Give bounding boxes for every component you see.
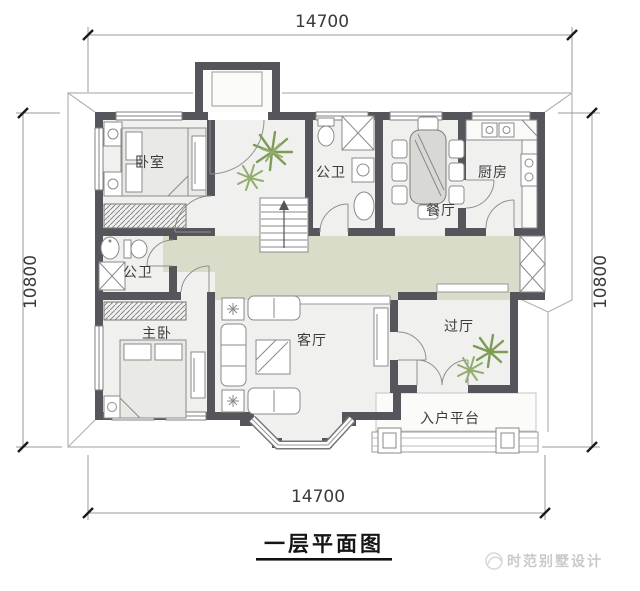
wardrobe-symbol xyxy=(104,302,186,320)
bed-symbol xyxy=(120,340,186,418)
chair-icon xyxy=(392,163,407,181)
label-master-bedroom: 主卧 xyxy=(142,326,172,342)
dimension-top: 14700 xyxy=(83,12,577,92)
entry-steps xyxy=(372,428,538,453)
chair-icon xyxy=(449,140,464,158)
dim-right-value: 10800 xyxy=(591,255,611,309)
corridor-sill-strip xyxy=(288,296,390,304)
hallway-sill-strip xyxy=(437,284,508,292)
dresser-symbol xyxy=(191,352,205,398)
shower-icon xyxy=(99,262,125,290)
toilet-icon xyxy=(318,118,334,146)
column-icon xyxy=(496,428,519,453)
chair-icon xyxy=(418,117,438,131)
toilet-icon xyxy=(124,240,147,258)
side-table-icon xyxy=(222,390,244,412)
chair-icon xyxy=(392,186,407,204)
label-hallway: 过厅 xyxy=(444,319,474,335)
porch-door-opening xyxy=(208,112,268,120)
stove-icon xyxy=(521,154,537,186)
window-bedroom-left xyxy=(95,128,103,190)
side-table-icon xyxy=(222,298,244,320)
label-bath-top: 公卫 xyxy=(316,165,346,181)
chair-icon xyxy=(449,186,464,204)
dim-bottom-value: 14700 xyxy=(291,487,345,507)
watermark: 时范别墅设计 xyxy=(486,553,603,570)
shower-icon xyxy=(342,116,374,150)
dimension-bottom: 14700 xyxy=(83,455,550,520)
wardrobe-symbol xyxy=(104,204,186,228)
nightstand-icon xyxy=(104,122,122,146)
drawing-title: 一层平面图 xyxy=(264,532,384,556)
stairs-icon xyxy=(260,198,308,252)
dresser-symbol xyxy=(192,136,206,190)
label-dining: 餐厅 xyxy=(426,203,456,219)
window-master-left xyxy=(95,326,103,390)
title-underline xyxy=(256,558,392,561)
label-bedroom: 卧室 xyxy=(135,154,165,171)
label-kitchen: 厨房 xyxy=(478,165,508,181)
tub-icon xyxy=(354,192,374,220)
corridor-end-pier xyxy=(520,236,545,292)
sofa-icon xyxy=(221,324,246,386)
watermark-logo-icon xyxy=(486,553,502,569)
basin-icon xyxy=(101,237,119,259)
dimension-left: 10800 xyxy=(16,108,62,452)
dim-top-value: 14700 xyxy=(295,12,349,32)
dimension-right: 10800 xyxy=(542,108,611,452)
label-bath-left: 公卫 xyxy=(123,265,153,281)
sofa-icon xyxy=(248,388,300,414)
watermark-text: 时范别墅设计 xyxy=(507,553,603,570)
label-living-room: 客厅 xyxy=(297,332,327,349)
chair-icon xyxy=(392,140,407,158)
sofa-icon xyxy=(248,296,300,320)
dim-left-value: 10800 xyxy=(21,255,41,309)
floor-plan-drawing: 卧室 公卫 餐厅 厨房 公卫 主卧 客厅 过厅 入户平台 14700 14700… xyxy=(0,0,640,591)
coffee-table-icon xyxy=(256,340,290,374)
window-kitchen xyxy=(472,112,530,120)
nightstand-icon xyxy=(104,396,120,418)
chair-icon xyxy=(449,163,464,181)
window-bedroom-top xyxy=(116,112,182,120)
sink-icon xyxy=(352,158,374,182)
label-entry-platform: 入户平台 xyxy=(420,410,480,427)
column-icon xyxy=(378,428,401,453)
nightstand-icon xyxy=(104,172,122,196)
tv-cabinet-icon xyxy=(374,308,388,366)
